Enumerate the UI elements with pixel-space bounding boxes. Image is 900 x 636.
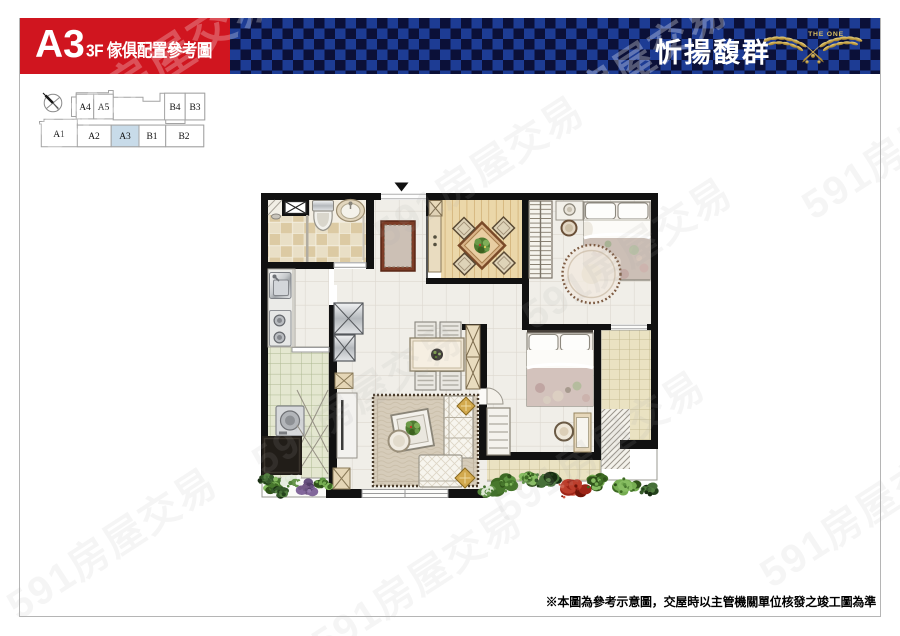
svg-text:B2: B2 <box>178 132 189 142</box>
svg-text:THE ONE: THE ONE <box>808 31 844 38</box>
svg-text:B1: B1 <box>146 132 157 142</box>
svg-text:A3: A3 <box>119 132 131 142</box>
svg-text:B4: B4 <box>169 103 180 113</box>
svg-text:B3: B3 <box>189 103 200 113</box>
